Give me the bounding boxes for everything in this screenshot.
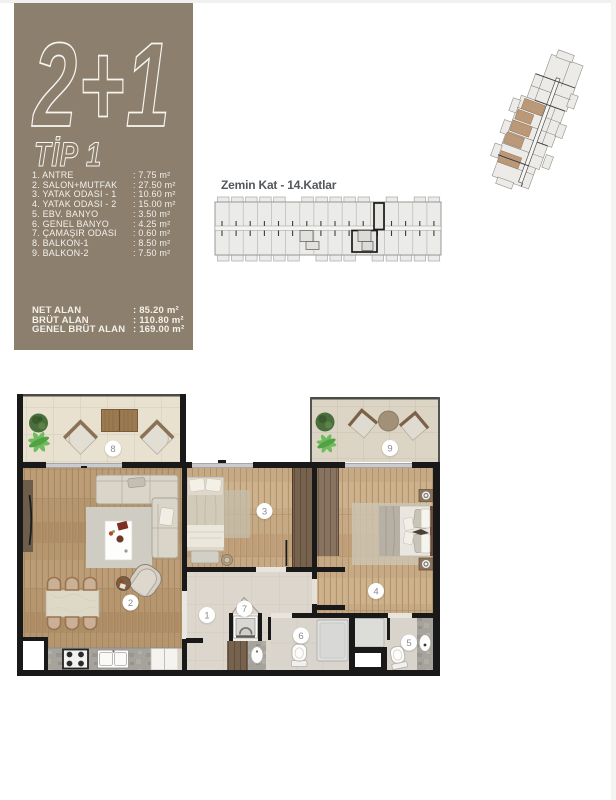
svg-text:4: 4	[373, 586, 378, 597]
svg-text:8: 8	[110, 444, 115, 455]
svg-text:2+1: 2+1	[31, 17, 171, 152]
svg-text:5: 5	[406, 638, 411, 649]
svg-text:3: 3	[262, 506, 267, 517]
svg-text:9: 9	[387, 443, 392, 454]
svg-text:TİP 1: TİP 1	[34, 135, 102, 174]
svg-text:7: 7	[242, 604, 247, 615]
svg-text:6: 6	[298, 631, 303, 642]
svg-text:2: 2	[128, 598, 133, 609]
svg-text:1: 1	[204, 610, 209, 621]
